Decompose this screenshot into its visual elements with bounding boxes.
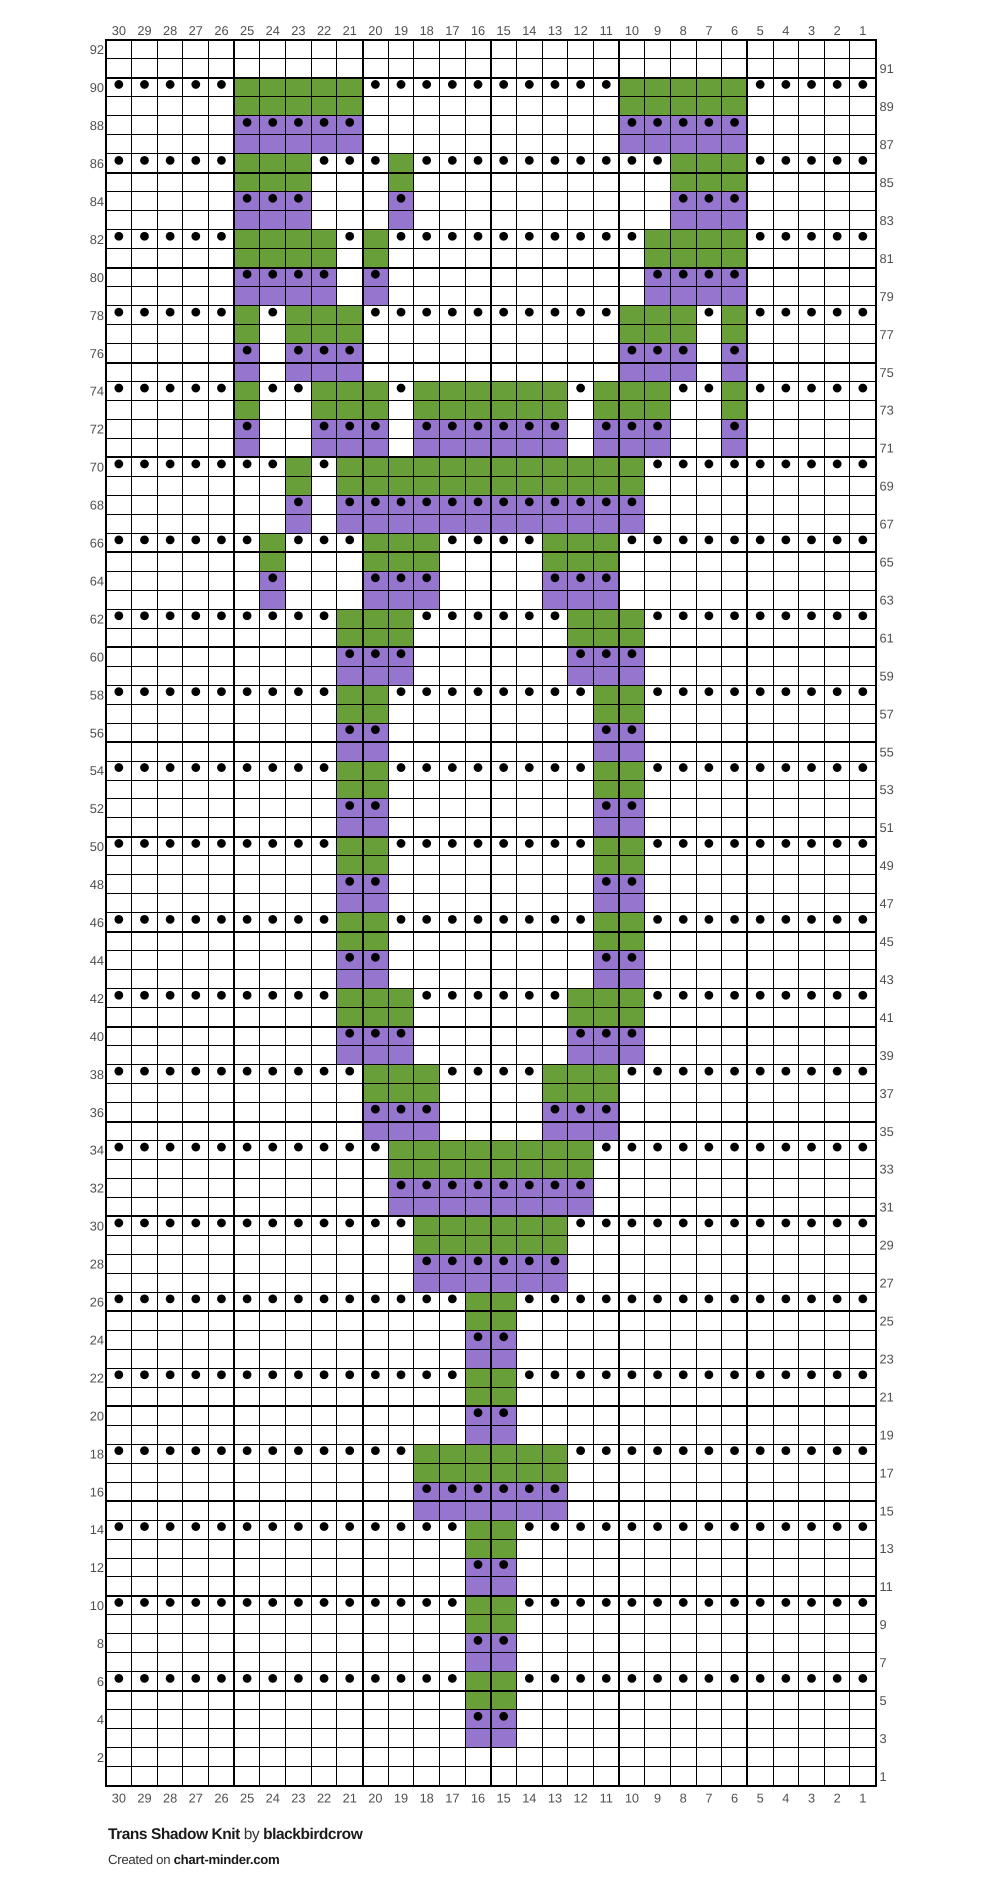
svg-text:6: 6 (731, 23, 738, 38)
svg-text:83: 83 (880, 213, 894, 228)
svg-text:19: 19 (880, 1427, 894, 1442)
svg-text:61: 61 (880, 630, 894, 645)
svg-text:80: 80 (90, 270, 104, 285)
svg-text:66: 66 (90, 536, 104, 551)
svg-text:23: 23 (880, 1351, 894, 1366)
svg-text:53: 53 (880, 782, 894, 797)
svg-text:32: 32 (90, 1181, 104, 1196)
svg-text:46: 46 (90, 915, 104, 930)
svg-text:37: 37 (880, 1086, 894, 1101)
svg-text:43: 43 (880, 972, 894, 987)
svg-text:65: 65 (880, 555, 894, 570)
svg-text:76: 76 (90, 346, 104, 361)
svg-text:28: 28 (163, 1791, 177, 1806)
svg-text:2: 2 (834, 1791, 841, 1806)
svg-text:25: 25 (240, 1791, 254, 1806)
svg-text:22: 22 (317, 1791, 331, 1806)
svg-text:47: 47 (880, 896, 894, 911)
svg-text:25: 25 (880, 1314, 894, 1329)
svg-text:58: 58 (90, 687, 104, 702)
svg-text:29: 29 (880, 1238, 894, 1253)
svg-text:26: 26 (90, 1295, 104, 1310)
svg-text:19: 19 (394, 23, 408, 38)
svg-text:79: 79 (880, 289, 894, 304)
svg-text:81: 81 (880, 251, 894, 266)
svg-text:49: 49 (880, 858, 894, 873)
svg-text:21: 21 (343, 23, 357, 38)
svg-text:60: 60 (90, 649, 104, 664)
svg-text:44: 44 (90, 953, 104, 968)
svg-text:70: 70 (90, 460, 104, 475)
svg-text:41: 41 (880, 1010, 894, 1025)
svg-text:54: 54 (90, 763, 104, 778)
svg-text:22: 22 (317, 23, 331, 38)
svg-text:63: 63 (880, 592, 894, 607)
svg-text:Created on chart-minder.com: Created on chart-minder.com (108, 1852, 279, 1867)
svg-text:26: 26 (214, 23, 228, 38)
svg-text:45: 45 (880, 934, 894, 949)
svg-text:14: 14 (522, 1791, 536, 1806)
svg-text:12: 12 (574, 23, 588, 38)
svg-text:16: 16 (90, 1484, 104, 1499)
svg-text:24: 24 (266, 23, 280, 38)
svg-text:34: 34 (90, 1143, 104, 1158)
svg-text:68: 68 (90, 498, 104, 513)
svg-text:13: 13 (548, 23, 562, 38)
svg-text:13: 13 (548, 1791, 562, 1806)
svg-text:14: 14 (90, 1522, 104, 1537)
svg-text:21: 21 (880, 1389, 894, 1404)
svg-text:72: 72 (90, 422, 104, 437)
svg-text:16: 16 (471, 23, 485, 38)
svg-text:21: 21 (343, 1791, 357, 1806)
svg-text:6: 6 (97, 1674, 104, 1689)
svg-text:74: 74 (90, 384, 104, 399)
svg-text:3: 3 (808, 1791, 815, 1806)
svg-text:5: 5 (757, 23, 764, 38)
svg-text:33: 33 (880, 1162, 894, 1177)
svg-text:10: 10 (90, 1598, 104, 1613)
svg-text:30: 30 (112, 1791, 126, 1806)
svg-text:27: 27 (189, 23, 203, 38)
svg-text:28: 28 (163, 23, 177, 38)
svg-text:28: 28 (90, 1257, 104, 1272)
svg-text:4: 4 (782, 23, 789, 38)
svg-text:42: 42 (90, 991, 104, 1006)
svg-text:15: 15 (497, 1791, 511, 1806)
svg-text:10: 10 (625, 1791, 639, 1806)
svg-text:17: 17 (445, 1791, 459, 1806)
svg-text:25: 25 (240, 23, 254, 38)
svg-text:29: 29 (137, 23, 151, 38)
svg-text:8: 8 (97, 1636, 104, 1651)
svg-text:51: 51 (880, 820, 894, 835)
svg-text:27: 27 (189, 1791, 203, 1806)
svg-text:62: 62 (90, 611, 104, 626)
svg-text:12: 12 (90, 1560, 104, 1575)
svg-text:91: 91 (880, 61, 894, 76)
svg-text:31: 31 (880, 1200, 894, 1215)
svg-text:17: 17 (445, 23, 459, 38)
svg-text:11: 11 (600, 1791, 613, 1806)
svg-text:69: 69 (880, 479, 894, 494)
svg-text:4: 4 (97, 1712, 104, 1727)
svg-text:30: 30 (90, 1219, 104, 1234)
svg-text:24: 24 (266, 1791, 280, 1806)
svg-text:75: 75 (880, 365, 894, 380)
svg-text:1: 1 (859, 1791, 866, 1806)
svg-text:18: 18 (420, 1791, 434, 1806)
svg-text:8: 8 (680, 23, 687, 38)
svg-text:6: 6 (731, 1791, 738, 1806)
svg-text:20: 20 (368, 1791, 382, 1806)
svg-text:22: 22 (90, 1370, 104, 1385)
svg-text:23: 23 (291, 1791, 305, 1806)
svg-text:90: 90 (90, 80, 104, 95)
svg-text:18: 18 (90, 1446, 104, 1461)
svg-text:39: 39 (880, 1048, 894, 1063)
svg-text:50: 50 (90, 839, 104, 854)
svg-text:9: 9 (654, 1791, 661, 1806)
svg-text:48: 48 (90, 877, 104, 892)
svg-text:3: 3 (880, 1731, 887, 1746)
svg-text:59: 59 (880, 668, 894, 683)
svg-text:7: 7 (705, 23, 712, 38)
svg-text:27: 27 (880, 1276, 894, 1291)
svg-text:78: 78 (90, 308, 104, 323)
svg-text:19: 19 (394, 1791, 408, 1806)
svg-text:20: 20 (90, 1408, 104, 1423)
svg-text:15: 15 (880, 1503, 894, 1518)
svg-text:26: 26 (214, 1791, 228, 1806)
svg-text:10: 10 (625, 23, 639, 38)
svg-text:2: 2 (97, 1750, 104, 1765)
svg-text:8: 8 (680, 1791, 687, 1806)
svg-text:20: 20 (368, 23, 382, 38)
svg-text:82: 82 (90, 232, 104, 247)
svg-text:3: 3 (808, 23, 815, 38)
svg-text:7: 7 (880, 1655, 887, 1670)
svg-text:77: 77 (880, 327, 894, 342)
svg-text:12: 12 (574, 1791, 588, 1806)
svg-text:Trans Shadow Knit by blackbird: Trans Shadow Knit by blackbirdcrow (108, 1826, 364, 1843)
svg-text:73: 73 (880, 403, 894, 418)
svg-text:11: 11 (880, 1579, 893, 1594)
svg-text:5: 5 (757, 1791, 764, 1806)
svg-text:23: 23 (291, 23, 305, 38)
svg-text:64: 64 (90, 573, 104, 588)
svg-text:67: 67 (880, 517, 894, 532)
svg-text:15: 15 (497, 23, 511, 38)
svg-text:89: 89 (880, 99, 894, 114)
svg-text:36: 36 (90, 1105, 104, 1120)
svg-text:71: 71 (880, 441, 894, 456)
svg-text:13: 13 (880, 1541, 894, 1556)
svg-text:9: 9 (880, 1617, 887, 1632)
svg-text:52: 52 (90, 801, 104, 816)
svg-text:11: 11 (600, 23, 613, 38)
svg-text:84: 84 (90, 194, 104, 209)
svg-text:57: 57 (880, 706, 894, 721)
svg-text:14: 14 (522, 23, 536, 38)
svg-text:16: 16 (471, 1791, 485, 1806)
svg-text:55: 55 (880, 744, 894, 759)
svg-text:5: 5 (880, 1693, 887, 1708)
svg-text:40: 40 (90, 1029, 104, 1044)
svg-text:56: 56 (90, 725, 104, 740)
svg-text:87: 87 (880, 137, 894, 152)
svg-text:29: 29 (137, 1791, 151, 1806)
svg-text:2: 2 (834, 23, 841, 38)
svg-text:30: 30 (112, 23, 126, 38)
svg-text:9: 9 (654, 23, 661, 38)
svg-text:7: 7 (705, 1791, 712, 1806)
svg-text:18: 18 (420, 23, 434, 38)
svg-text:88: 88 (90, 118, 104, 133)
svg-text:35: 35 (880, 1124, 894, 1139)
svg-text:24: 24 (90, 1332, 104, 1347)
svg-text:1: 1 (880, 1769, 887, 1784)
svg-text:17: 17 (880, 1465, 894, 1480)
svg-text:85: 85 (880, 175, 894, 190)
svg-text:1: 1 (859, 23, 866, 38)
svg-text:92: 92 (90, 42, 104, 57)
svg-text:4: 4 (782, 1791, 789, 1806)
svg-text:38: 38 (90, 1067, 104, 1082)
svg-text:86: 86 (90, 156, 104, 171)
